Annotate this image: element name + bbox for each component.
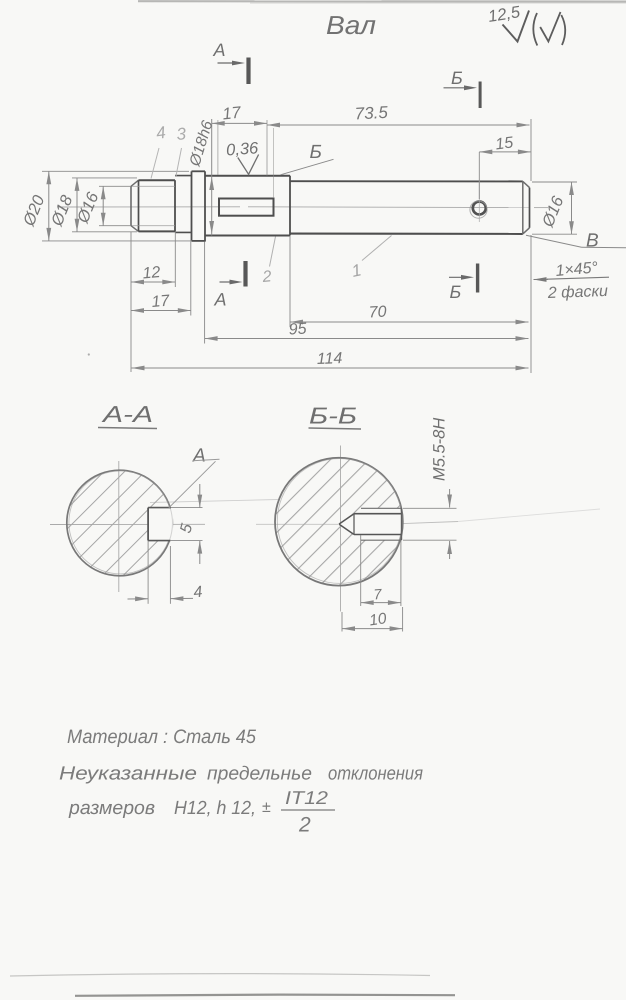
svg-text:Б: Б xyxy=(450,282,462,302)
svg-text:предельнье: предельнье xyxy=(207,764,312,785)
svg-text:Материал : Сталь 45: Материал : Сталь 45 xyxy=(67,726,256,748)
svg-text:17: 17 xyxy=(222,104,243,124)
svg-text:73.5: 73.5 xyxy=(354,103,389,124)
svg-text:Вал: Вал xyxy=(326,10,376,40)
svg-text:4: 4 xyxy=(193,584,204,602)
svg-text:0,36: 0,36 xyxy=(226,139,260,159)
svg-text:Неуказанные: Неуказанные xyxy=(59,764,197,785)
svg-text:17: 17 xyxy=(151,292,171,311)
svg-text:70: 70 xyxy=(368,304,387,322)
svg-text:2: 2 xyxy=(261,268,272,286)
svg-text:±: ± xyxy=(262,799,271,816)
svg-text:М5.5-8Н: М5.5-8Н xyxy=(431,418,449,481)
svg-text:А: А xyxy=(214,290,227,310)
svg-text:А-А: А-А xyxy=(100,401,153,427)
svg-text:Н12, h 12,: Н12, h 12, xyxy=(174,798,256,819)
svg-text:Б-Б: Б-Б xyxy=(309,403,357,429)
svg-text:15: 15 xyxy=(494,134,514,153)
svg-text:В: В xyxy=(586,231,599,252)
svg-text:А: А xyxy=(192,446,206,467)
svg-text:А: А xyxy=(213,40,226,60)
svg-text:10: 10 xyxy=(368,610,388,629)
svg-text:2 фаски: 2 фаски xyxy=(547,283,609,302)
svg-text:размеров: размеров xyxy=(68,798,155,819)
svg-text:Б: Б xyxy=(310,142,322,163)
svg-text:2: 2 xyxy=(298,814,311,837)
svg-text:95: 95 xyxy=(288,321,307,339)
svg-text:IT12: IT12 xyxy=(285,787,329,808)
svg-text:12: 12 xyxy=(142,264,161,282)
svg-text:114: 114 xyxy=(317,350,343,368)
svg-text:отклонения: отклонения xyxy=(328,764,423,785)
svg-text:Б: Б xyxy=(451,68,463,88)
